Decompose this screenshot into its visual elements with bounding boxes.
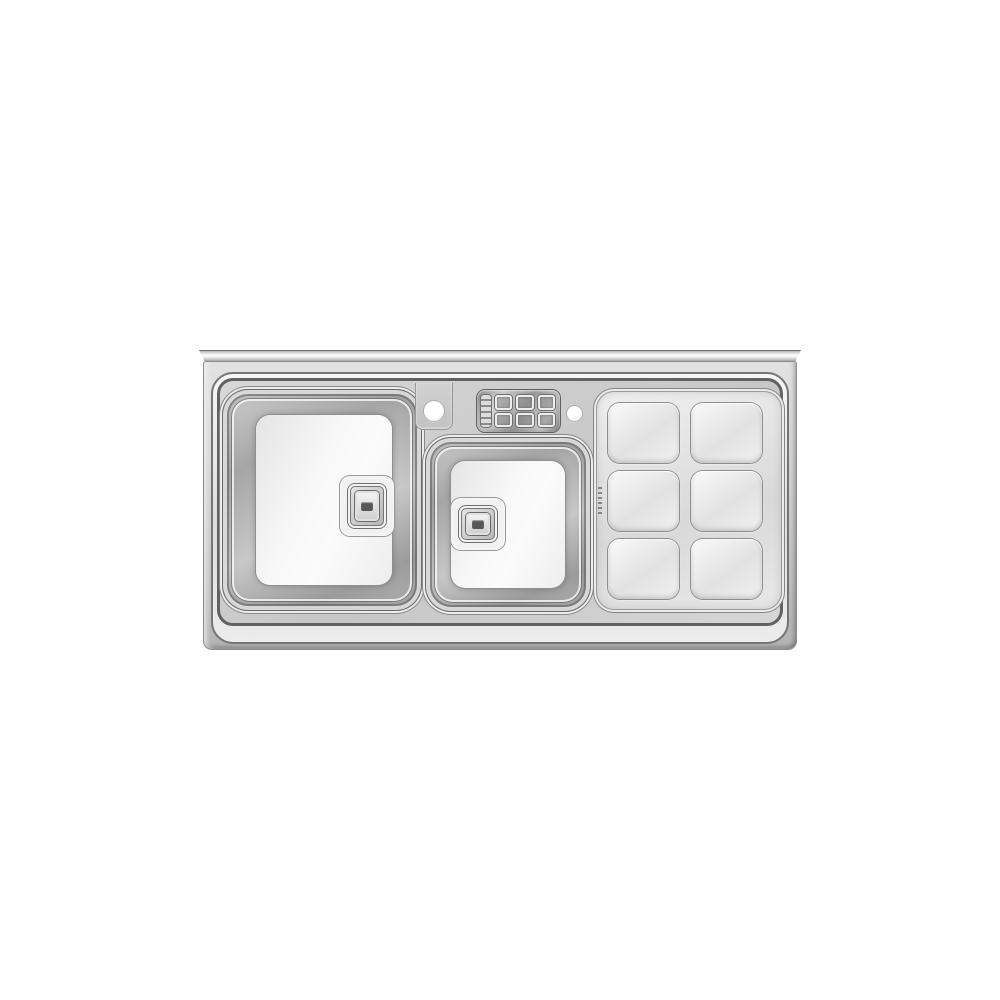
tray-slot [538,413,555,428]
tray-slot [516,395,533,410]
middle-bowl [425,437,591,612]
drainboard-cell [608,539,679,599]
brand-mark [598,487,602,515]
drainboard-cell [691,403,762,463]
tray-slot [495,395,512,410]
tray-rail [481,395,491,427]
product-photo [0,0,1000,1000]
middle-bowl-drain [451,498,505,550]
sink-body [203,361,797,650]
tray-slot-grid [495,395,555,427]
drain-core [361,502,373,511]
soap-dispenser-hole [567,406,582,421]
drain-core [472,520,484,529]
drainboard-grid [608,403,762,599]
accessory-tray [477,390,560,432]
left-bowl [222,389,422,611]
tray-slot [516,413,533,428]
sink-deck [217,378,783,626]
drainboard-cell [691,539,762,599]
left-bowl-drain [340,476,394,536]
kitchen-sink [203,350,797,650]
tray-slot [495,413,512,428]
faucet-hole [424,401,444,421]
drainboard-cell [608,403,679,463]
drainboard-cell [608,471,679,531]
tray-slot [538,395,555,410]
drainboard-cell [691,471,762,531]
sink-outer-frame [211,372,789,644]
drainboard [596,391,782,610]
